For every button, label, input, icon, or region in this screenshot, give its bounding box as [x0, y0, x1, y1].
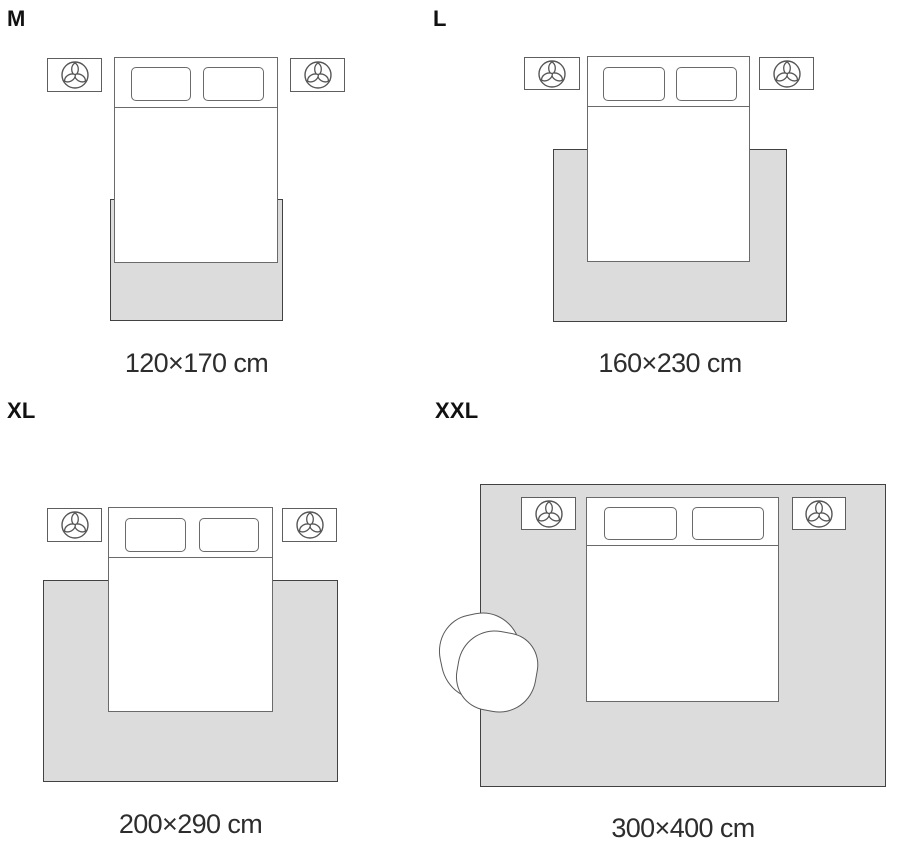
panel-size-xxl: XXL 300×400 cm — [430, 390, 900, 850]
headboard-divider — [587, 545, 778, 546]
panel-size-xl: XL 200×290 cm — [0, 390, 450, 850]
nightstand-left — [47, 58, 102, 92]
nightstand-left — [524, 57, 580, 90]
nightstand-left — [521, 497, 576, 530]
panel-size-l: L 160×230 cm — [430, 0, 900, 390]
plant-icon — [804, 499, 834, 529]
bed — [586, 497, 779, 702]
panel-size-m: M 120×170 cm — [0, 0, 450, 390]
bed — [108, 507, 273, 712]
bed — [587, 56, 750, 262]
bed — [114, 57, 278, 263]
nightstand-right — [282, 508, 337, 542]
size-caption-m: 120×170 cm — [110, 348, 283, 379]
pillow-left — [131, 67, 191, 101]
pillow-right — [676, 67, 737, 101]
pillow-right — [692, 507, 764, 540]
size-label-xl: XL — [7, 399, 36, 423]
pillow-right — [199, 518, 259, 552]
size-label-l: L — [433, 7, 447, 31]
plant-icon — [772, 59, 802, 89]
size-caption-l: 160×230 cm — [553, 348, 787, 379]
pillow-left — [604, 507, 677, 540]
nightstand-left — [47, 508, 102, 542]
plant-icon — [303, 60, 333, 90]
plant-icon — [537, 59, 567, 89]
headboard-divider — [115, 107, 277, 108]
plant-icon — [60, 60, 90, 90]
pillow-left — [603, 67, 665, 101]
size-label-xxl: XXL — [435, 399, 478, 423]
pillow-right — [203, 67, 264, 101]
plant-icon — [534, 499, 564, 529]
plant-icon — [60, 510, 90, 540]
size-label-m: M — [7, 7, 26, 31]
rug-size-guide: M 120×170 cm L 160×230 cm — [0, 0, 900, 850]
headboard-divider — [588, 106, 749, 107]
headboard-divider — [109, 557, 272, 558]
nightstand-right — [759, 57, 814, 90]
nightstand-right — [290, 58, 345, 92]
size-caption-xxl: 300×400 cm — [480, 813, 886, 844]
plant-icon — [295, 510, 325, 540]
nightstand-right — [792, 497, 846, 530]
pillow-left — [125, 518, 186, 552]
size-caption-xl: 200×290 cm — [43, 809, 338, 840]
